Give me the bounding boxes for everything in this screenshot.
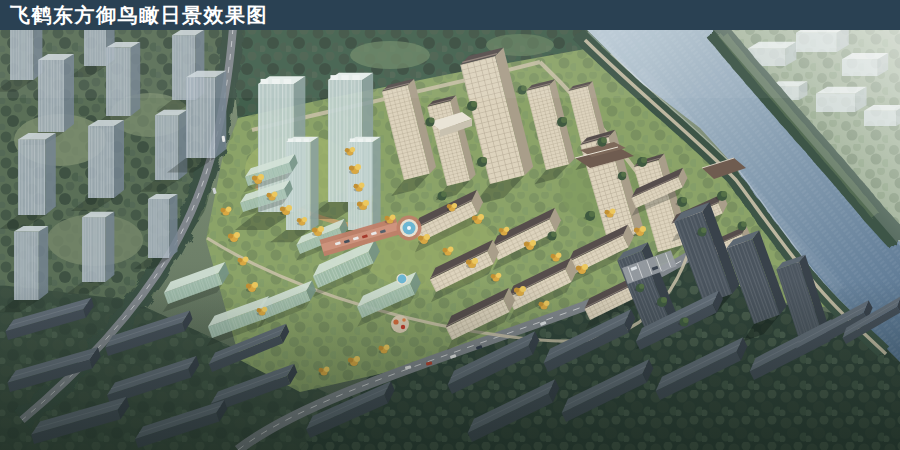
page-title: 飞鹤东方御鸟瞰日景效果图 (10, 0, 268, 30)
aerial-rendering (0, 0, 900, 450)
title-bar: 飞鹤东方御鸟瞰日景效果图 (0, 0, 900, 30)
rendering-image: 飞鹤东方御鸟瞰日景效果图 (0, 0, 900, 450)
